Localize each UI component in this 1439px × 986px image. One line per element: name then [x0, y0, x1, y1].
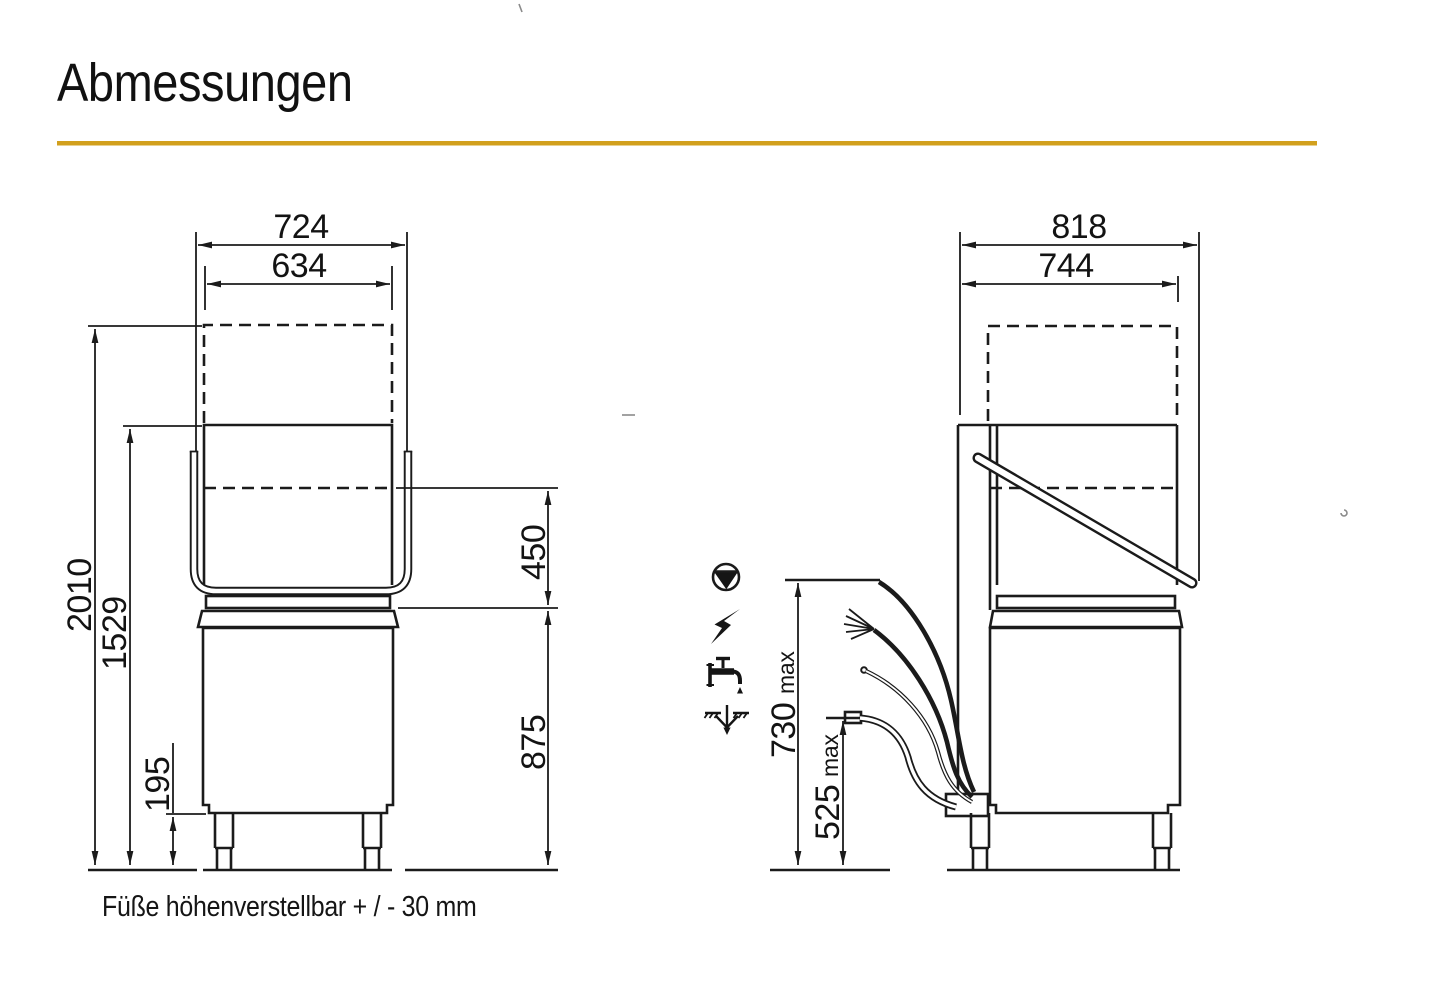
- front-view: 724 634 2010 1529: [61, 208, 558, 922]
- hood-outline: [204, 425, 392, 585]
- dim-label-hood-raised: 1529: [96, 596, 134, 670]
- tank-rim: [990, 611, 1182, 627]
- connection-icons: [705, 564, 750, 735]
- machine-body: [203, 628, 393, 813]
- dim-label-leg-height: 195: [139, 757, 177, 812]
- hood-raised-outline: [988, 326, 1177, 421]
- dim-label-drain-height: 525: [809, 785, 847, 840]
- scan-artifact: [1341, 510, 1347, 516]
- scan-artifact: [519, 4, 522, 12]
- dim-label-opening-height: 450: [515, 525, 553, 580]
- accent-rule: [57, 141, 1317, 146]
- tank-rim: [198, 611, 398, 627]
- hood-handle-core: [978, 458, 1192, 583]
- side-view: 818 744: [705, 208, 1200, 870]
- dim-label-table-height: 875: [515, 715, 553, 770]
- leg-front: [971, 813, 989, 869]
- dim-label-body-depth: 744: [1038, 247, 1093, 285]
- dim-label-hood-width: 634: [271, 247, 326, 285]
- feet-caption: Füße höhenverstellbar + / - 30 mm: [102, 890, 477, 922]
- dim-label-drain-height-suffix: max: [817, 734, 843, 777]
- machine-body: [990, 628, 1180, 813]
- waste-water-drain-icon: [705, 705, 750, 735]
- dim-label-connection-height: 730: [765, 703, 803, 758]
- leg-back: [1153, 813, 1171, 869]
- dim-label-total-height: 2010: [61, 558, 99, 632]
- electric-connection-icon: [711, 609, 740, 644]
- leg-right: [363, 813, 381, 869]
- hood-handle: [194, 451, 408, 591]
- hood-bottom-band: [206, 596, 390, 608]
- hood-bottom-band: [997, 596, 1175, 608]
- datasheet-page: Abmessungen 724 634: [0, 0, 1439, 986]
- water-tap-icon: [707, 659, 744, 694]
- drain-pump-icon: [713, 564, 739, 590]
- dimensions-drawing: Abmessungen 724 634: [0, 0, 1439, 986]
- leg-left: [215, 813, 233, 869]
- dim-label-outer-width: 724: [273, 208, 328, 246]
- hood-handle-core: [194, 451, 408, 591]
- page-title: Abmessungen: [57, 52, 353, 113]
- dim-label-connection-height-suffix: max: [773, 651, 799, 694]
- cable-frayed-end: [844, 609, 874, 639]
- hood-raised-outline: [204, 325, 392, 423]
- dim-label-outer-depth: 818: [1051, 208, 1106, 246]
